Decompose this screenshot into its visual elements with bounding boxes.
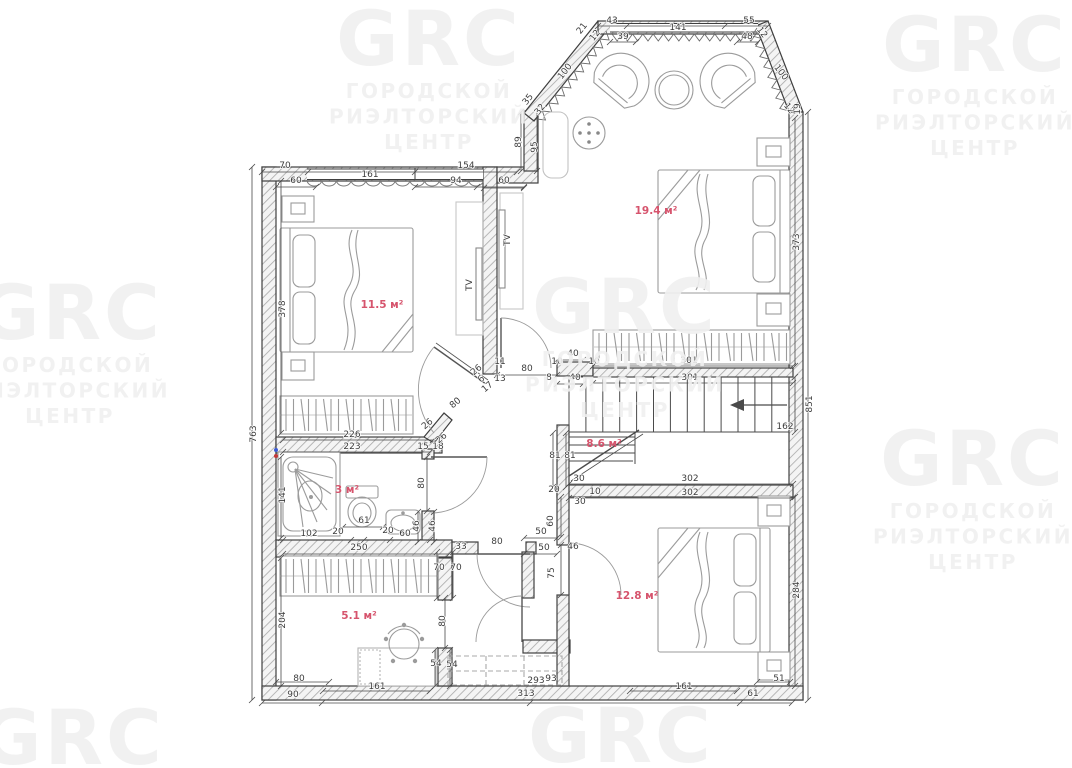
room-area-label-bedroom-1: 11.5 м²	[361, 299, 404, 311]
dimension-label: 51	[773, 674, 784, 684]
dimension-label: 54	[446, 660, 458, 670]
dimension-label: 373	[792, 233, 802, 250]
dimension-label: 80	[448, 396, 463, 411]
dimension-label: 19	[793, 103, 803, 115]
dimension-label: 302	[681, 474, 698, 484]
dimension-label: 162	[776, 422, 793, 432]
nightstand-knob	[291, 360, 305, 371]
watermark-text: РИЭЛТОРСКИЙ	[875, 111, 1072, 135]
dimension-label: 293	[527, 676, 544, 686]
dimension-label: 20	[332, 527, 344, 537]
dimension-label: 89	[514, 136, 524, 148]
dimension-label: 46	[428, 520, 438, 532]
watermark: GRC	[528, 691, 714, 768]
dimension-label: 60	[290, 176, 302, 186]
watermark: GRCГОРОДСКОЙРИЭЛТОРСКИЙЦЕНТР	[0, 268, 170, 428]
door-bathroom	[431, 457, 487, 513]
watermark-text: РИЭЛТОРСКИЙ	[525, 373, 725, 397]
dimension-label: 204	[278, 611, 288, 628]
watermark-text: ГОРОДСКОЙ	[346, 79, 512, 103]
dimension-label: 93	[545, 674, 556, 684]
dimension-label: 75	[547, 567, 557, 578]
dimension-label: 284	[792, 581, 802, 598]
tv-label: TV	[465, 278, 475, 291]
wall-mid-vertical	[483, 167, 497, 374]
nightstand-knob	[767, 505, 781, 516]
dimension-label: 15	[417, 442, 428, 452]
watermark: GRC	[0, 693, 165, 768]
watermark: GRCГОРОДСКОЙРИЭЛТОРСКИЙЦЕНТР	[329, 0, 529, 154]
dimension-label: 141	[669, 23, 686, 33]
dimension-label: 378	[278, 300, 288, 317]
watermark-text: ЦЕНТР	[384, 130, 474, 154]
tv-screen	[476, 248, 482, 320]
dimension-label: 39	[617, 32, 629, 42]
armchair	[689, 42, 762, 114]
dimension-label: 70	[450, 563, 462, 573]
dimension-label: 81	[564, 451, 575, 461]
watermark-text: ГОРОДСКОЙ	[890, 499, 1056, 523]
watermark-text: РИЭЛТОРСКИЙ	[329, 105, 529, 129]
dimension-label: 60	[399, 529, 411, 539]
coffee-table	[655, 71, 693, 109]
watermark-text: РИЭЛТОРСКИЙ	[873, 525, 1072, 549]
nightstand-knob	[291, 203, 305, 214]
tv-label: TV	[503, 233, 513, 246]
stair-direction-arrow-icon	[730, 399, 744, 411]
rug	[543, 112, 568, 178]
nightstand-knob	[767, 660, 781, 671]
dimension-label: 30	[574, 497, 586, 507]
armchair	[588, 42, 661, 114]
watermark-text: ГОРОДСКОЙ	[892, 85, 1058, 109]
wardrobe-office	[280, 556, 438, 596]
dimension-label: 20	[382, 526, 394, 536]
dimension-label: 141	[278, 486, 288, 503]
watermark-text: ЦЕНТР	[25, 404, 115, 428]
dimension-label: 81	[549, 451, 560, 461]
water-supply-dot	[274, 448, 278, 452]
dimension-label: 94	[450, 176, 462, 186]
dimension-label: 50	[538, 543, 550, 553]
wall-corridor-mid	[522, 552, 534, 598]
watermark-logo: GRC	[882, 0, 1068, 89]
door-office	[476, 596, 522, 642]
watermark-text: ГОРОДСКОЙ	[0, 353, 153, 377]
dimension-label: 48	[741, 32, 753, 42]
wall-right	[789, 112, 803, 700]
room-area-label-hall: 8.6 м²	[586, 438, 622, 450]
dimension-label: 95	[530, 141, 540, 152]
watermark-logo: GRC	[532, 262, 718, 351]
round-table	[573, 117, 605, 149]
dimension-label: 154	[457, 161, 474, 171]
dimension-label: 61	[747, 689, 758, 699]
water-supply-dot	[274, 454, 278, 458]
dimension-label: 60	[498, 176, 510, 186]
dimension-label: 80	[491, 537, 503, 547]
room-area-label-bedroom-3: 12.8 м²	[616, 590, 659, 602]
desk	[358, 648, 436, 686]
dimension-label: 11	[494, 357, 505, 367]
dimension-label: 763	[249, 425, 259, 442]
dimension-label: 80	[417, 477, 427, 489]
dimension-label: 60	[546, 515, 556, 527]
dimension-label: 250	[350, 543, 367, 553]
dimension-label: 50	[535, 527, 547, 537]
dimension-label: 10	[589, 487, 601, 497]
dimension-label: 54	[430, 659, 442, 669]
watermark-text: ЦЕНТР	[928, 550, 1018, 574]
dimension-label: 302	[681, 488, 698, 498]
dimension-label: 70	[433, 563, 445, 573]
dimension-label: 80	[438, 615, 448, 627]
wall-bedroom3-left	[557, 595, 569, 686]
dimension-label: 43	[606, 16, 617, 26]
watermark: GRCГОРОДСКОЙРИЭЛТОРСКИЙЦЕНТР	[875, 0, 1072, 160]
dimension-label: 20	[548, 485, 560, 495]
watermark-logo: GRC	[528, 691, 714, 768]
room-area-label-bathroom: 3 м²	[335, 484, 360, 496]
bed-bedroom-1	[280, 228, 413, 352]
watermark-text: ЦЕНТР	[580, 398, 670, 422]
dimension-label: 33	[455, 542, 466, 552]
room-area-label-bedroom-2: 19.4 м²	[635, 205, 678, 217]
nightstand-knob	[766, 303, 781, 314]
dimension-label: 226	[343, 430, 360, 440]
watermark-text: ГОРОДСКОЙ	[542, 347, 708, 371]
bay-window-teeth	[612, 34, 756, 41]
dimension-label: 30	[573, 474, 585, 484]
watermark-logo: GRC	[880, 414, 1066, 503]
coffee-table-inner	[659, 75, 689, 105]
floor-plan-drawing: 7016115460946043141553948211210035328995…	[0, 0, 1072, 768]
watermark-logo: GRC	[0, 268, 163, 357]
dimension-label: 161	[361, 170, 378, 180]
watermark-logo: GRC	[0, 693, 165, 768]
bed-bedroom-3	[658, 528, 770, 652]
dimension-label: 90	[287, 690, 299, 700]
dimension-label: 80	[293, 674, 305, 684]
floor-plan-page: 7016115460946043141553948211210035328995…	[0, 0, 1072, 768]
dimension-label: 46	[567, 542, 579, 552]
dimension-label: 161	[368, 682, 385, 692]
watermark-text: ЦЕНТР	[930, 136, 1020, 160]
dimension-label: 223	[343, 442, 360, 452]
room-area-label-office: 5.1 м²	[341, 610, 377, 622]
tv-screen	[499, 210, 505, 288]
dimension-label: 70	[279, 161, 291, 171]
dimension-label: 55	[743, 16, 754, 26]
dimension-label: 102	[300, 529, 317, 539]
watermark-text: РИЭЛТОРСКИЙ	[0, 379, 170, 403]
watermark-logo: GRC	[336, 0, 522, 83]
wardrobe-bedroom-1	[280, 396, 413, 434]
dimension-label: 46	[412, 520, 422, 532]
dimension-label: 13	[494, 374, 505, 384]
watermark: GRCГОРОДСКОЙРИЭЛТОРСКИЙЦЕНТР	[873, 414, 1072, 574]
nightstand-knob	[766, 146, 781, 157]
dimension-label: 61	[358, 516, 369, 526]
wall-left	[262, 167, 276, 700]
watermark: GRCГОРОДСКОЙРИЭЛТОРСКИЙЦЕНТР	[525, 262, 725, 422]
dimension-label: 851	[805, 395, 815, 412]
